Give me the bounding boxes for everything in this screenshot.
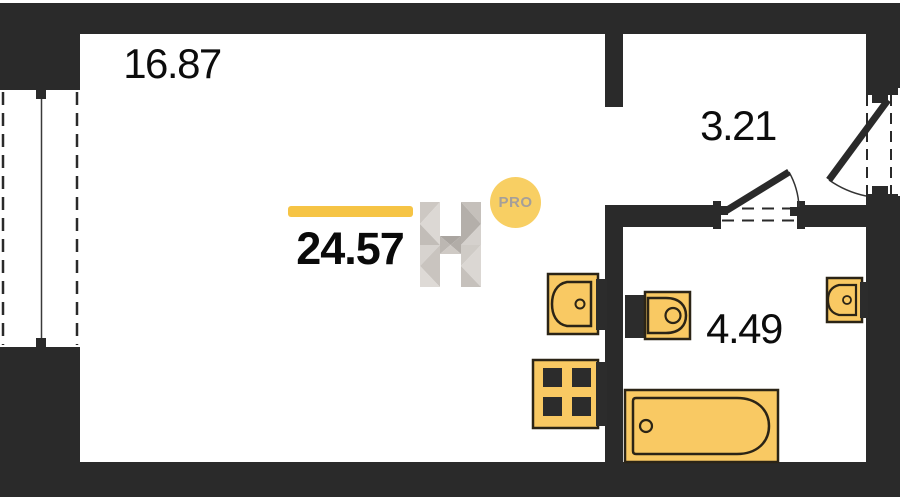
stove-burner <box>543 368 562 387</box>
door-hinge-right <box>790 207 797 216</box>
toilet-tank <box>625 295 645 338</box>
door-leaf <box>724 172 789 212</box>
floor-plan: 16.87 3.21 4.49 24.57 PRO <box>0 0 900 497</box>
wall-right-lower <box>866 196 900 462</box>
entry-door <box>829 86 898 202</box>
room-area-label-bathroom: 4.49 <box>664 308 824 350</box>
wall-left-lower <box>0 347 80 462</box>
logo-crossbar <box>440 236 461 254</box>
wash-basin-icon <box>827 278 868 322</box>
stove-icon <box>533 360 607 428</box>
sink-mount <box>596 279 607 330</box>
window-mullion-top <box>36 90 46 99</box>
wall-left-upper <box>0 3 80 90</box>
window-mullion-bottom <box>36 338 46 347</box>
total-area-accent-bar <box>288 206 413 217</box>
door-leaf <box>829 100 888 180</box>
fixtures <box>533 274 868 462</box>
stove-burner <box>543 397 562 416</box>
wall-hallway-bath-left <box>605 205 713 227</box>
wall-bottom <box>0 462 900 497</box>
stove-burner <box>572 397 591 416</box>
stove-mount <box>596 362 607 426</box>
bathroom-door <box>713 172 805 229</box>
logo-left-bar <box>420 202 440 287</box>
room-area-label-living: 16.87 <box>82 43 262 85</box>
door-jamb-left <box>713 201 721 229</box>
door-swing-arc <box>829 180 866 196</box>
wall-right-upper <box>866 34 900 88</box>
bathtub-icon <box>625 390 778 462</box>
room-area-label-hallway: 3.21 <box>658 105 818 147</box>
stove-burner <box>572 368 591 387</box>
basin-mount <box>860 282 868 318</box>
wall-top <box>0 3 900 34</box>
logo-h-icon <box>420 202 481 287</box>
pro-badge-label: PRO <box>498 194 532 211</box>
wall-divider-vertical <box>605 205 623 462</box>
door-jamb-top <box>866 86 898 95</box>
wall-stub-hallway <box>605 34 623 107</box>
door-jamb-bottom <box>866 194 898 202</box>
logo-right-bar <box>461 202 481 287</box>
wall-hallway-bath-right <box>805 205 866 227</box>
total-area-value: 24.57 <box>283 226 417 271</box>
kitchen-sink-icon <box>548 274 607 334</box>
window <box>3 90 77 347</box>
door-hinge-bottom <box>872 186 888 194</box>
pro-badge: PRO <box>490 177 541 228</box>
